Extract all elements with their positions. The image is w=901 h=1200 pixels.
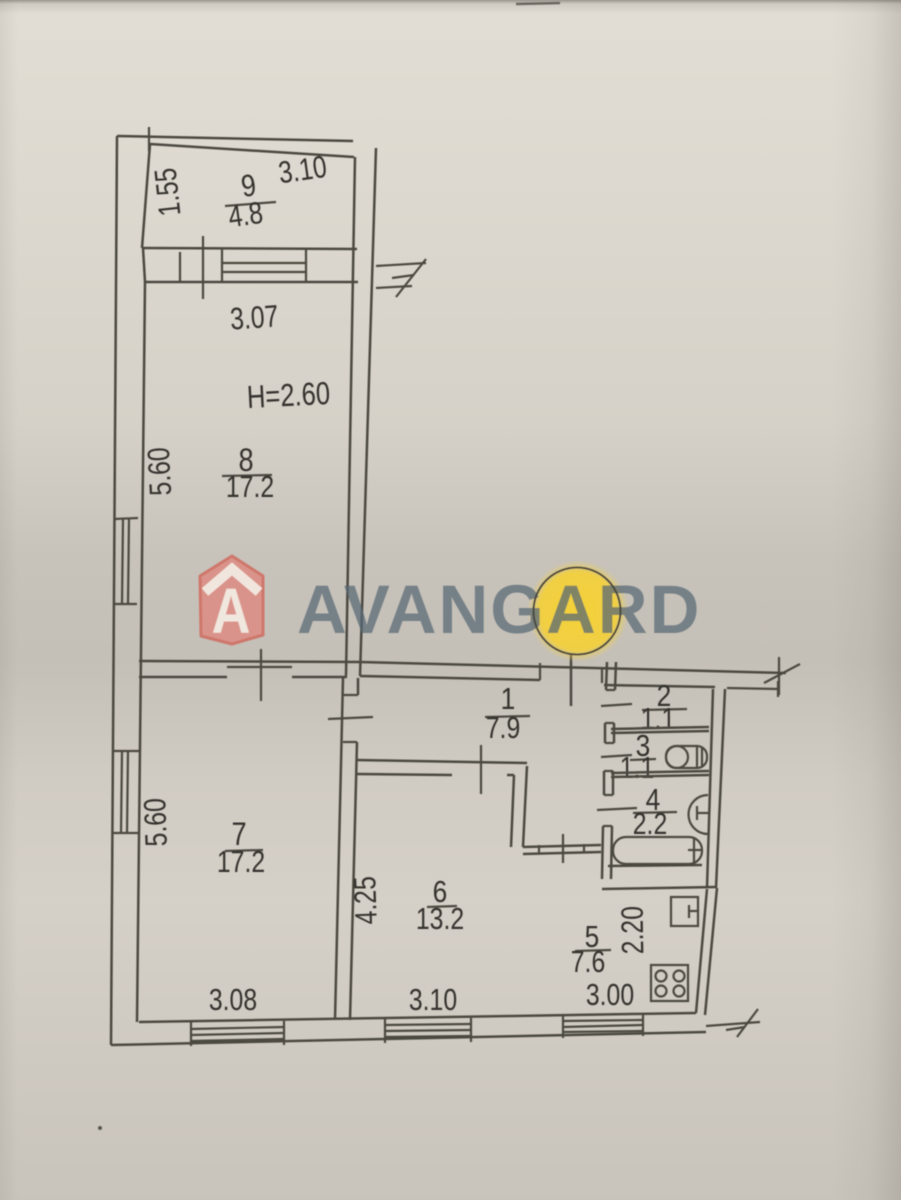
svg-text:7.9: 7.9 bbox=[486, 710, 520, 744]
svg-text:A: A bbox=[212, 575, 251, 648]
svg-text:7.6: 7.6 bbox=[571, 944, 605, 978]
svg-text:4.8: 4.8 bbox=[226, 195, 265, 234]
svg-text:5.60: 5.60 bbox=[138, 798, 174, 847]
svg-text:H=2.60: H=2.60 bbox=[246, 376, 331, 416]
svg-text:5.60: 5.60 bbox=[141, 447, 178, 497]
svg-text:AVANGARD: AVANGARD bbox=[297, 571, 701, 648]
svg-text:3.07: 3.07 bbox=[229, 299, 280, 337]
svg-text:3.08: 3.08 bbox=[209, 982, 257, 1016]
svg-text:3.10: 3.10 bbox=[276, 149, 329, 190]
svg-text:17.2: 17.2 bbox=[226, 469, 274, 503]
svg-text:13.2: 13.2 bbox=[416, 901, 464, 935]
svg-text:2.2: 2.2 bbox=[633, 806, 667, 840]
svg-text:2.20: 2.20 bbox=[615, 906, 650, 955]
svg-text:17.2: 17.2 bbox=[217, 844, 265, 878]
svg-text:3.10: 3.10 bbox=[409, 982, 457, 1016]
svg-text:3.00: 3.00 bbox=[586, 977, 634, 1011]
svg-text:1.1: 1.1 bbox=[620, 750, 654, 784]
svg-text:1.55: 1.55 bbox=[148, 166, 187, 218]
svg-text:4.25: 4.25 bbox=[348, 876, 384, 925]
